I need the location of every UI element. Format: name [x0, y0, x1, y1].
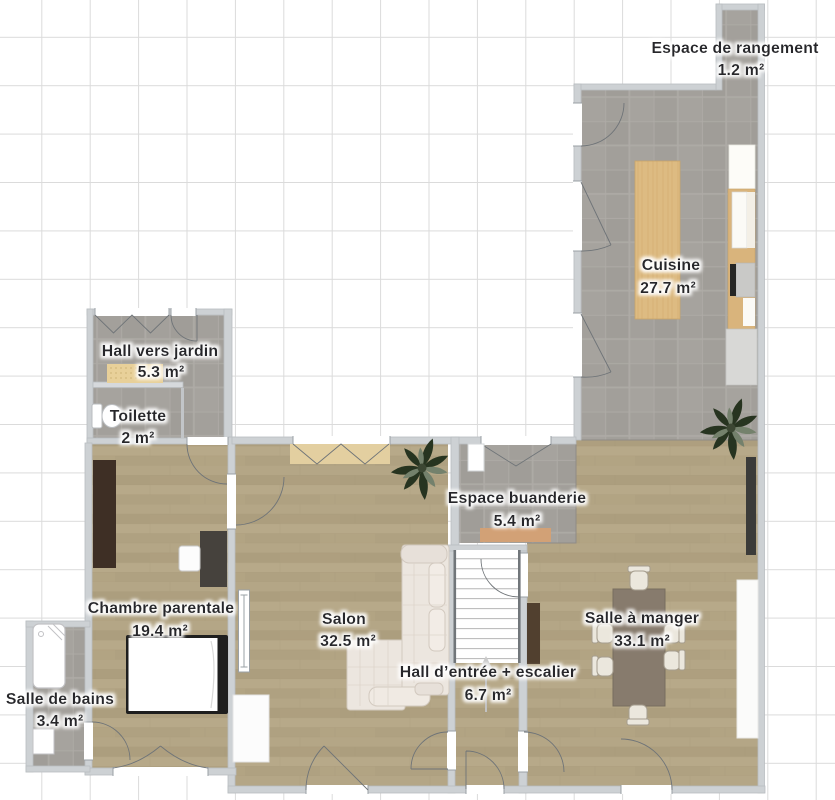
svg-text:Cuisine: Cuisine — [642, 257, 700, 274]
svg-text:1.2 m²: 1.2 m² — [718, 62, 765, 79]
svg-text:33.1 m²: 33.1 m² — [614, 633, 670, 650]
svg-text:3.4 m²: 3.4 m² — [37, 713, 84, 730]
svg-text:Hall d’entrée + escalier: Hall d’entrée + escalier — [400, 664, 576, 681]
svg-text:5.4 m²: 5.4 m² — [494, 513, 541, 530]
svg-text:Espace de rangement: Espace de rangement — [651, 40, 819, 57]
svg-text:32.5 m²: 32.5 m² — [320, 633, 376, 650]
svg-text:27.7 m²: 27.7 m² — [640, 280, 696, 297]
svg-text:Salon: Salon — [322, 611, 366, 628]
svg-text:Toilette: Toilette — [110, 408, 167, 425]
svg-text:Hall vers jardin: Hall vers jardin — [102, 343, 218, 360]
svg-text:2 m²: 2 m² — [121, 430, 154, 447]
svg-text:6.7 m²: 6.7 m² — [465, 687, 512, 704]
svg-text:5.3 m²: 5.3 m² — [138, 364, 185, 381]
svg-text:Salle à manger: Salle à manger — [585, 610, 699, 627]
svg-text:19.4 m²: 19.4 m² — [132, 623, 188, 640]
svg-text:Espace buanderie: Espace buanderie — [448, 490, 586, 507]
svg-text:Salle de bains: Salle de bains — [6, 691, 114, 708]
svg-text:Chambre parentale: Chambre parentale — [88, 600, 235, 617]
